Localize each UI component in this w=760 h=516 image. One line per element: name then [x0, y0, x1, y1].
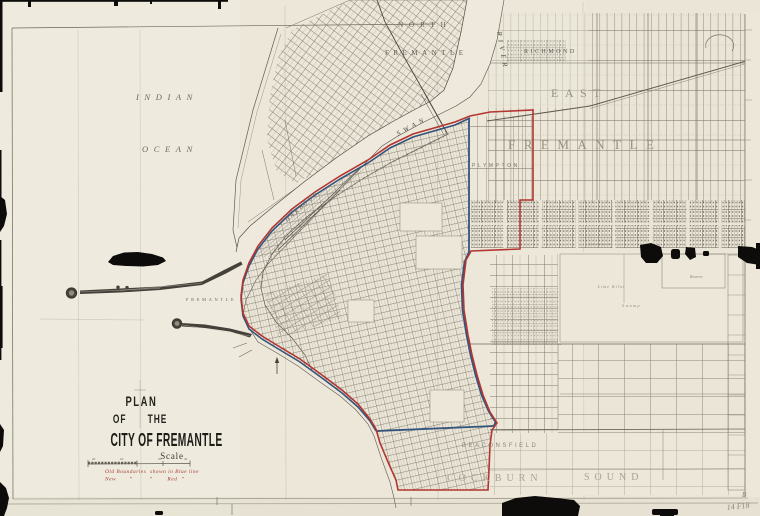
- svg-text:OF: OF: [113, 414, 127, 427]
- svg-text:COCKBURN: COCKBURN: [447, 473, 543, 484]
- svg-text:EAST: EAST: [551, 86, 607, 100]
- svg-text:20: 20: [158, 457, 162, 461]
- svg-text:Scale: Scale: [160, 451, 184, 461]
- svg-text:Reserve: Reserve: [689, 274, 703, 279]
- svg-text:South Fremantle: South Fremantle: [588, 242, 612, 246]
- svg-text:Old Boundaries shown in Blue: Old Boundaries shown in Blue line: [105, 469, 199, 475]
- svg-text:New ” ” R: New ” ” Red ”: [104, 477, 185, 483]
- svg-text:THE: THE: [148, 414, 168, 427]
- svg-text:INDIAN: INDIAN: [135, 92, 198, 102]
- svg-text:PLAN: PLAN: [125, 394, 157, 409]
- svg-text:RICHMOND: RICHMOND: [524, 49, 577, 55]
- svg-text:Swamp: Swamp: [622, 303, 641, 308]
- svg-text:NORTH: NORTH: [398, 21, 452, 29]
- svg-text:FREMANTLE: FREMANTLE: [385, 49, 468, 57]
- svg-text:CITY OF FREMANTLE: CITY OF FREMANTLE: [110, 430, 222, 451]
- svg-text:20: 20: [92, 457, 96, 461]
- svg-text:Lime Kilns: Lime Kilns: [597, 284, 625, 289]
- svg-text:OCEAN: OCEAN: [142, 144, 198, 154]
- svg-text:FREMANTLE: FREMANTLE: [508, 137, 663, 152]
- svg-text:BEACONSFIELD: BEACONSFIELD: [462, 443, 538, 449]
- svg-text:40: 40: [184, 457, 188, 461]
- svg-text:10: 10: [120, 457, 124, 461]
- svg-text:FREMANTLE: FREMANTLE: [186, 297, 236, 302]
- svg-text:B: B: [742, 491, 747, 499]
- svg-text:PLYMPTON: PLYMPTON: [472, 163, 520, 169]
- svg-text:SOUND: SOUND: [584, 472, 643, 483]
